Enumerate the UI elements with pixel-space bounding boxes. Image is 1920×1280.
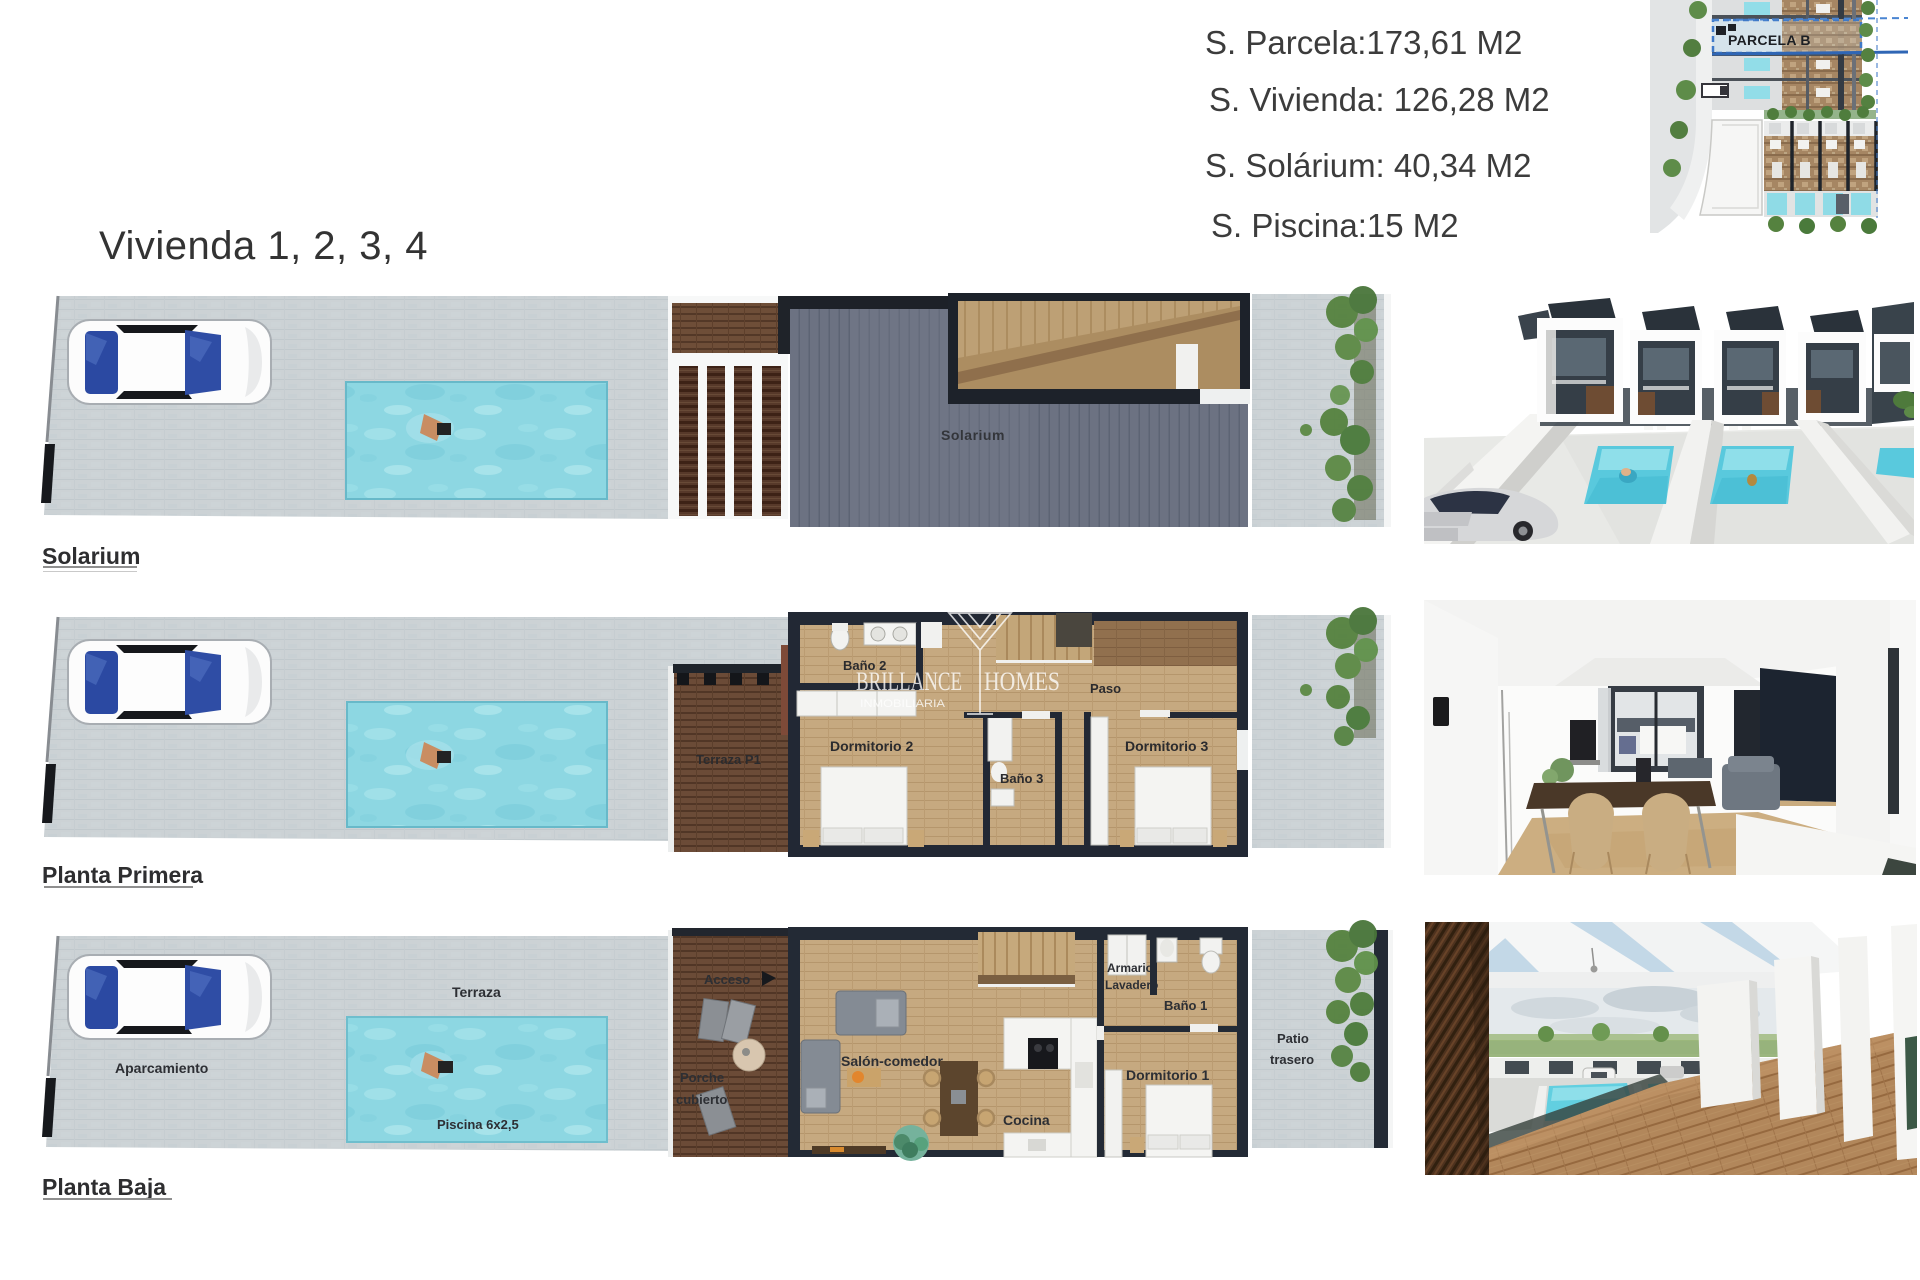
svg-text:Piscina 6x2,5: Piscina 6x2,5 xyxy=(437,1117,519,1132)
svg-text:Salón-comedor: Salón-comedor xyxy=(841,1053,943,1069)
svg-text:Patio: Patio xyxy=(1277,1031,1309,1046)
svg-text:Terraza P1: Terraza P1 xyxy=(696,752,761,767)
svg-text:cubierto: cubierto xyxy=(676,1092,727,1107)
svg-text:Aparcamiento: Aparcamiento xyxy=(115,1060,208,1076)
svg-text:trasero: trasero xyxy=(1270,1052,1314,1067)
svg-text:Armario-: Armario- xyxy=(1107,961,1157,975)
svg-text:Acceso: Acceso xyxy=(704,972,750,987)
svg-text:Porche: Porche xyxy=(680,1070,724,1085)
svg-text:PARCELA B: PARCELA B xyxy=(1728,32,1811,48)
svg-text:Solarium: Solarium xyxy=(941,427,1005,443)
svg-text:Dormitorio 3: Dormitorio 3 xyxy=(1125,738,1208,754)
svg-text:Dormitorio 1: Dormitorio 1 xyxy=(1126,1067,1209,1083)
svg-text:Cocina: Cocina xyxy=(1003,1112,1050,1128)
svg-text:Dormitorio 2: Dormitorio 2 xyxy=(830,738,913,754)
svg-text:HOMES: HOMES xyxy=(984,667,1060,696)
svg-text:INMOBILIARIA: INMOBILIARIA xyxy=(860,698,946,710)
svg-text:Baño 3: Baño 3 xyxy=(1000,771,1043,786)
svg-text:BRILLANCE: BRILLANCE xyxy=(856,667,962,696)
svg-text:Terraza: Terraza xyxy=(452,984,501,1000)
svg-text:Baño 1: Baño 1 xyxy=(1164,998,1207,1013)
